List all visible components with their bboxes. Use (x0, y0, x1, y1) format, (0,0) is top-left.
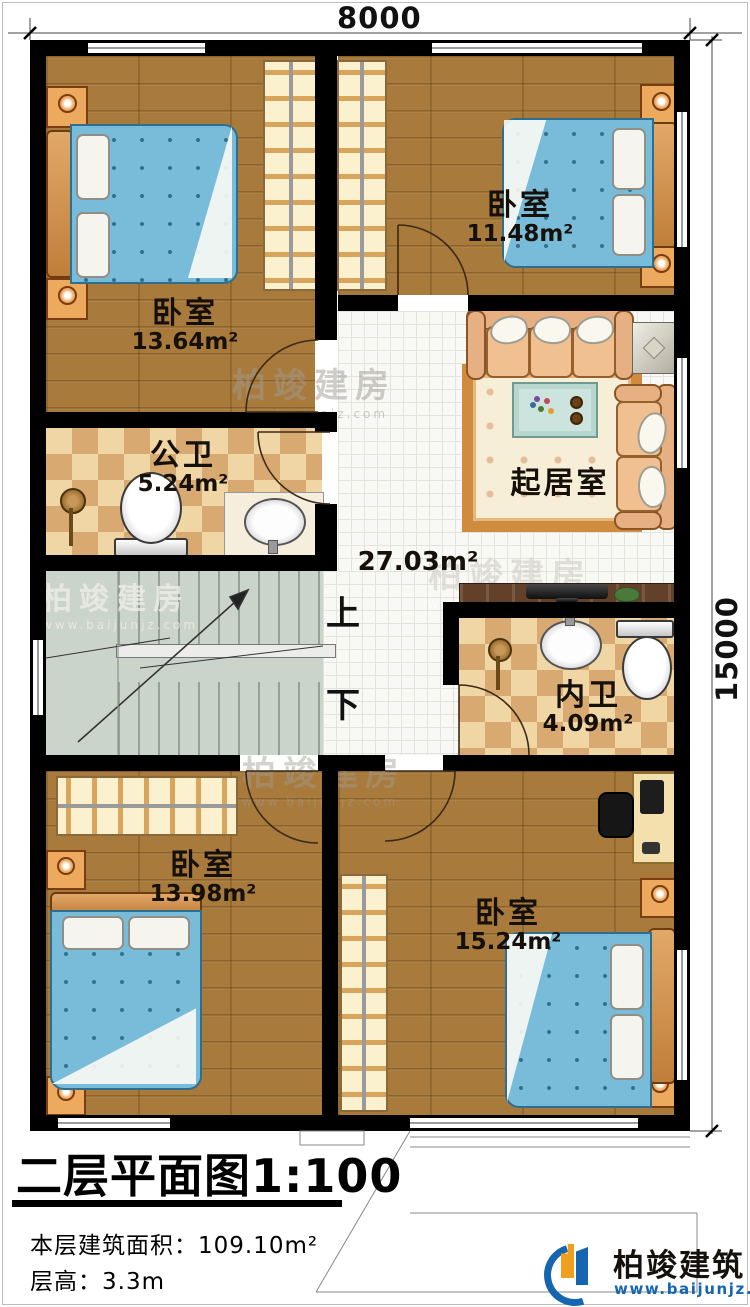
tv-icon (526, 584, 608, 599)
wall (30, 555, 322, 571)
wall (443, 602, 674, 618)
floor-area-line: 本层建筑面积：109.10m² (30, 1226, 318, 1260)
stairs-down-label: 下 (326, 678, 360, 727)
wall (30, 755, 240, 771)
room-name: 卧室 (487, 188, 553, 223)
room-name: 公卫 (150, 438, 216, 473)
bed-pillow (612, 128, 646, 190)
desk-lamp-icon (640, 780, 664, 814)
floor-lamp-icon (488, 638, 512, 662)
bed-pillow (128, 916, 190, 950)
bed-pillow (62, 916, 124, 950)
room-area: 5.24m² (118, 472, 248, 497)
wall (30, 40, 46, 1131)
wardrobe (263, 60, 319, 291)
room-name: 起居室 (511, 466, 610, 501)
logo-swoosh-icon (533, 1233, 617, 1307)
sofa-armrest (466, 310, 486, 380)
dimension-width: 8000 (337, 1, 422, 35)
brand-name: 柏竣建筑 (613, 1240, 745, 1285)
room-area: 13.64m² (100, 330, 270, 355)
dimension-height: 15000 (710, 612, 744, 702)
wall (30, 412, 322, 428)
brand-logo: 柏竣建筑 www.baijunjz.com (543, 1240, 743, 1302)
wall (455, 755, 690, 771)
room-label-public-bathroom: 公卫 5.24m² (118, 440, 248, 497)
wall (443, 602, 459, 685)
wall (338, 755, 385, 771)
room-name: 卧室 (170, 848, 236, 883)
room-label-bedroom-bottom-left: 卧室 13.98m² (128, 850, 278, 907)
room-name: 内卫 (555, 678, 621, 713)
sheet-title: 二层平面图1:100 (16, 1140, 402, 1206)
floor-lamp-stem (69, 508, 73, 546)
sink-icon (540, 620, 602, 670)
room-area: 15.24m² (428, 930, 588, 955)
room-area: 11.48m² (440, 222, 600, 247)
chair-icon (598, 792, 634, 838)
logo-building-icon (576, 1247, 588, 1285)
room-label-bedroom-top-right: 卧室 11.48m² (440, 190, 600, 247)
flower-decor (534, 396, 540, 402)
faucet-icon (268, 540, 278, 554)
title-underline (12, 1200, 342, 1207)
bed-pillow (76, 212, 110, 278)
room-label-ensuite-bathroom: 内卫 4.09m² (528, 680, 648, 737)
floor-area-label: 本层建筑面积： (30, 1233, 198, 1259)
floor-lamp-stem (496, 656, 500, 690)
window (58, 1117, 170, 1129)
room-area: 27.03m² (348, 548, 488, 576)
room-name: 卧室 (152, 296, 218, 331)
sink-icon (244, 498, 306, 546)
wardrobe (56, 776, 238, 836)
watermark-text: 柏竣建房 (42, 582, 190, 617)
window (88, 42, 205, 54)
coffee-table (512, 382, 598, 438)
room-area-living-room: 27.03m² (348, 548, 488, 576)
wardrobe (340, 874, 388, 1112)
floor-height-value: 3.3m (102, 1269, 165, 1295)
nightstand (46, 850, 86, 890)
window (676, 358, 688, 468)
bed-pillow (76, 134, 110, 200)
sofa-armrest (614, 511, 662, 530)
window (676, 112, 688, 247)
wall (315, 56, 337, 340)
window (410, 1117, 638, 1129)
wardrobe (337, 60, 387, 291)
cup-icon (570, 412, 583, 425)
room-name: 卧室 (475, 896, 541, 931)
stairs-up-label: 上 (326, 586, 360, 635)
watermark-site: www.baijunjz.com (42, 618, 198, 632)
brand-website: www.baijunjz.com (614, 1280, 750, 1298)
turtle-decor (614, 587, 640, 602)
wall (322, 771, 338, 1115)
bed-pillow (610, 944, 644, 1010)
floorplan-sheet: 柏竣建房 www.baijunjz.com 柏竣建房 www.baijunjz.… (0, 0, 750, 1307)
floor-lamp-icon (60, 488, 86, 514)
nightstand (46, 86, 88, 128)
bed-headboard (648, 928, 676, 1084)
window (676, 950, 688, 1080)
sofa-armrest (614, 310, 634, 380)
floor-height-line: 层高：3.3m (30, 1262, 165, 1296)
floor-area-value: 109.10m² (198, 1233, 318, 1259)
sheet-title-text: 二层平面图 (16, 1149, 251, 1203)
wall (338, 295, 398, 311)
floor-height-label: 层高： (30, 1269, 102, 1295)
window (32, 640, 44, 715)
nightstand (46, 278, 88, 320)
stair-treads-lower (118, 682, 323, 755)
wall (468, 295, 674, 311)
room-area: 4.09m² (528, 712, 648, 737)
wall (318, 755, 338, 771)
window (432, 42, 642, 54)
room-label-bedroom-top-left: 卧室 13.64m² (100, 298, 270, 355)
desk-item (642, 842, 660, 854)
sheet-scale-text: 1:100 (251, 1149, 402, 1203)
room-area: 13.98m² (128, 882, 278, 907)
bed-pillow (610, 1014, 644, 1080)
cup-icon (570, 396, 583, 409)
watermark: 柏竣建房 www.baijunjz.com (42, 574, 198, 632)
room-label-bedroom-bottom-right: 卧室 15.24m² (428, 898, 588, 955)
stair-railing (116, 644, 336, 658)
bed-pillow (612, 194, 646, 256)
room-label-living-room: 起居室 (472, 468, 648, 500)
watermark-text: 柏竣建房 (232, 366, 396, 406)
brand-logo-icon (543, 1238, 605, 1300)
side-table (632, 322, 676, 374)
